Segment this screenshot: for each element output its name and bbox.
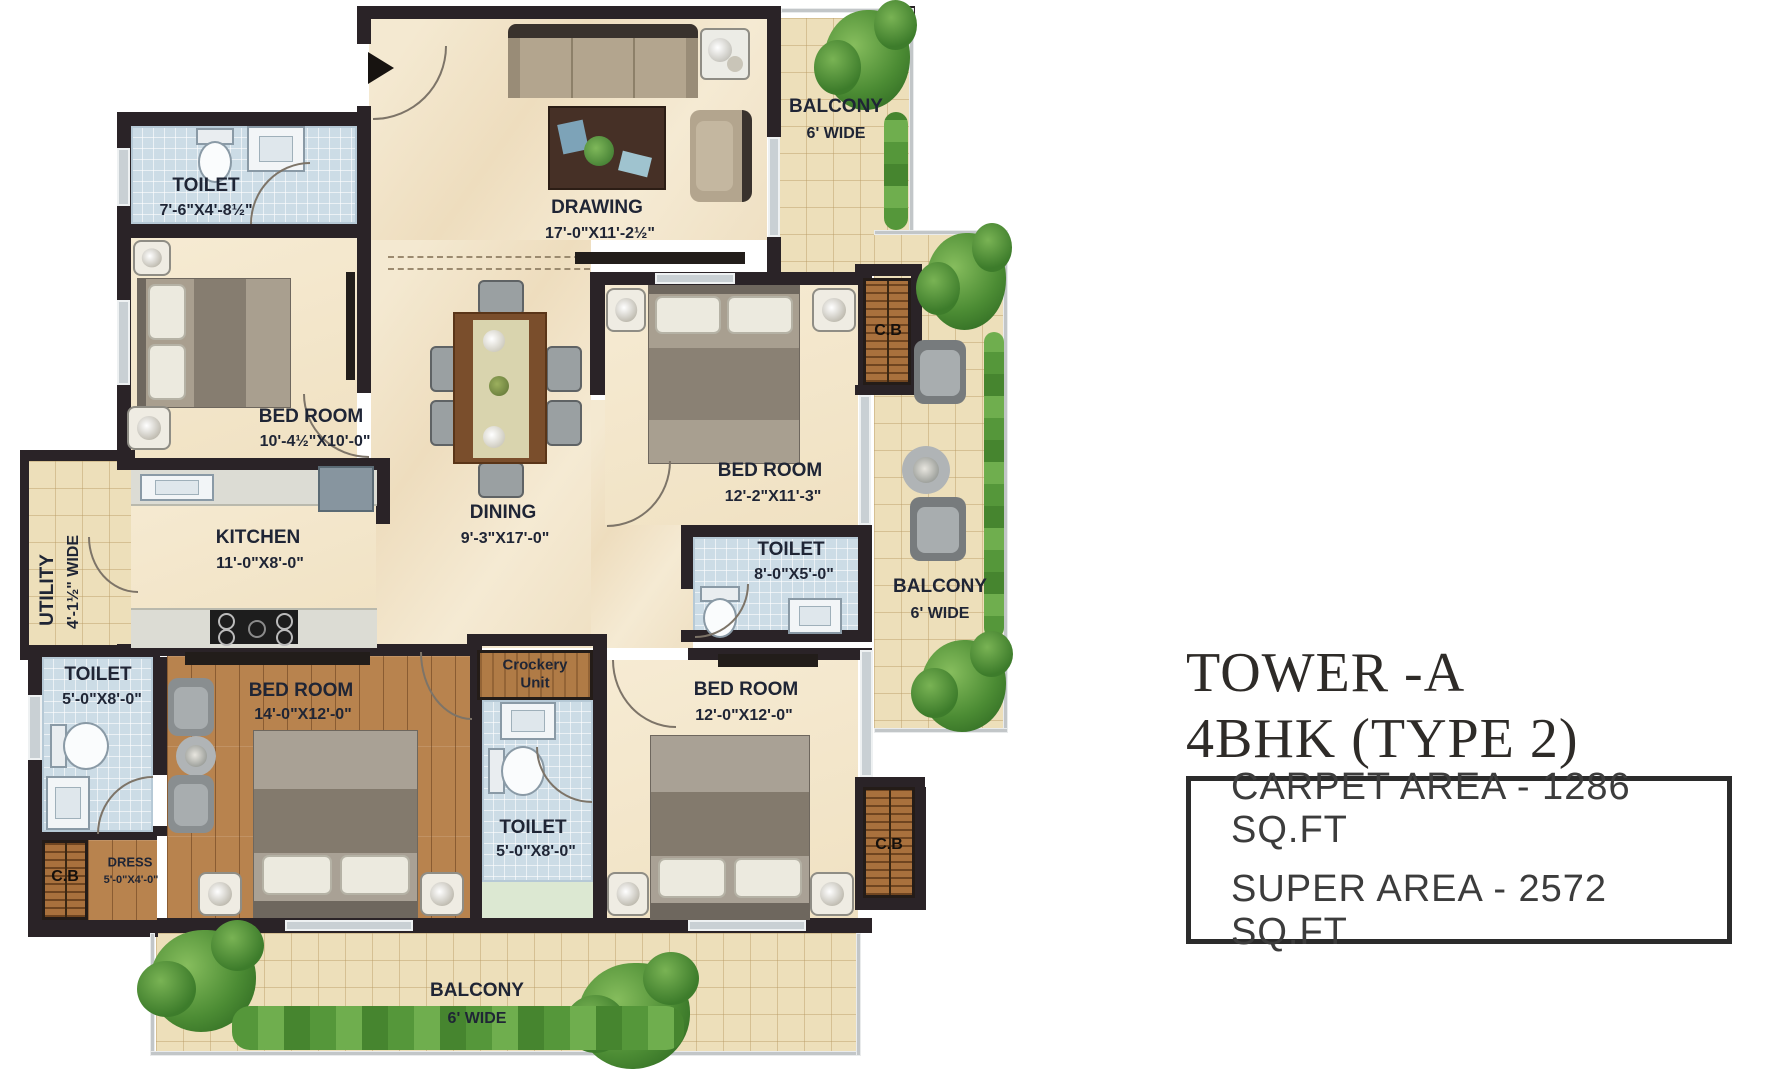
dining-chair [546, 400, 582, 446]
wall-segment [915, 787, 926, 900]
entry-arrow-icon [368, 52, 394, 84]
wall-segment [467, 634, 607, 646]
room-label: BED ROOM [259, 406, 364, 428]
balcony-railing [874, 728, 1008, 733]
room-label: BALCONY [789, 96, 883, 118]
wall-segment [855, 777, 925, 787]
plan-title: TOWER -A 4BHK (TYPE 2) [1186, 640, 1579, 772]
room-label: BED ROOM [249, 680, 354, 702]
wall-segment [117, 224, 371, 238]
room-dims: 17'-0"X11'-2½" [545, 225, 655, 243]
armchair [168, 678, 214, 736]
wall-segment [357, 106, 371, 240]
carpet-area-text: CARPET AREA - 1286 SQ.FT [1231, 766, 1727, 852]
room-label: Crockery [502, 657, 567, 674]
sliding-door [285, 920, 413, 931]
room-dims: 12'-2"X11'-3" [725, 488, 822, 506]
room-dims: 6' WIDE [911, 605, 970, 623]
pillow [148, 284, 186, 340]
dining-chair [478, 462, 524, 498]
nightstand [420, 872, 464, 916]
window [860, 650, 873, 777]
window [768, 137, 780, 237]
balcony-railing [856, 933, 861, 1056]
armchair [168, 775, 214, 833]
side-table [700, 28, 750, 80]
room-label: TOILET [64, 664, 131, 686]
room-dims: 6' WIDE [807, 125, 866, 143]
room-label: BED ROOM [694, 679, 799, 701]
nightstand [127, 406, 171, 450]
wall-segment [357, 240, 371, 393]
room-dims: 12'-0"X12'-0" [695, 707, 793, 725]
bathroom-sink [500, 702, 556, 740]
round-rug [176, 736, 216, 776]
tv-console [185, 652, 370, 665]
wall-segment [593, 646, 607, 920]
refrigerator [318, 466, 374, 512]
pillow [655, 296, 721, 334]
armchair [690, 110, 752, 202]
pillow [734, 858, 802, 898]
room-dims: 5'-0"X8'-0" [496, 843, 576, 861]
coffee-table [548, 106, 666, 190]
room-label: UTILITY [37, 554, 59, 626]
room-dims: 5'-0"X4'-0" [104, 874, 159, 886]
wall-segment [855, 385, 922, 395]
nightstand [607, 872, 649, 916]
nightstand [810, 872, 854, 916]
sofa [508, 24, 698, 98]
room-dims: 6' WIDE [448, 1010, 507, 1028]
tv-console [575, 252, 745, 264]
wall-segment [767, 237, 781, 272]
room-label: Unit [520, 675, 549, 692]
wall-segment [590, 272, 605, 395]
open-plan-dashed-line [388, 268, 590, 270]
super-area-text: SUPER AREA - 2572 SQ.FT [1231, 868, 1727, 954]
wall-segment [855, 898, 926, 910]
vine-strip [884, 112, 908, 230]
wall-segment [357, 6, 781, 19]
balcony-table [902, 446, 950, 494]
pillow [340, 855, 410, 895]
window [117, 148, 130, 206]
pillow [262, 855, 332, 895]
stove [210, 610, 298, 644]
nightstand [812, 288, 856, 332]
nightstand [606, 288, 646, 332]
wall-segment [681, 525, 872, 537]
room-dims: 11'-0"X8'-0" [216, 555, 304, 573]
plan-title-line2: 4BHK (TYPE 2) [1186, 706, 1579, 772]
cupboard-label: C.B [875, 836, 903, 854]
toilet-bowl [63, 722, 109, 770]
window [28, 695, 42, 760]
balcony-railing [150, 1051, 861, 1056]
floor-plan-page: { "title": { "line1": "TOWER -A", "line2… [0, 0, 1779, 1080]
cupboard-label: C.B [874, 322, 902, 340]
room-label: TOILET [499, 817, 566, 839]
room-label: TOILET [172, 175, 239, 197]
room-label: KITCHEN [216, 527, 300, 549]
bathroom-sink [46, 776, 90, 830]
room-dims: 7'-6"X4'-8½" [159, 202, 252, 220]
wall-segment [20, 450, 29, 660]
wall-segment [376, 458, 390, 524]
pillow [727, 296, 793, 334]
nightstand [198, 872, 242, 916]
tv-console [718, 654, 818, 667]
room-dims: 10'-4½"X10'-0" [260, 433, 371, 451]
wall-segment [767, 19, 781, 137]
room-dims: 14'-0"X12'-0" [254, 706, 352, 724]
dining-table [453, 312, 547, 464]
wall-segment [858, 525, 872, 642]
wall-segment [357, 19, 371, 44]
nightstand [133, 240, 171, 276]
room-label: BALCONY [430, 980, 524, 1002]
area-info-box: CARPET AREA - 1286 SQ.FT SUPER AREA - 25… [1186, 776, 1732, 944]
room-dims: 5'-0"X8'-0" [62, 691, 142, 709]
wall-segment [28, 645, 42, 937]
room-dims: 4'-1½" WIDE [65, 535, 83, 629]
wall-segment [20, 450, 135, 461]
room-label: DINING [470, 502, 537, 524]
dining-chair [478, 280, 524, 316]
window [117, 300, 130, 385]
wall-segment [117, 112, 371, 126]
wall-segment [153, 657, 167, 775]
pillow [658, 858, 726, 898]
wall-segment [28, 920, 158, 937]
wall-segment [855, 787, 863, 900]
bathroom-sink [788, 598, 842, 634]
open-plan-dashed-line [388, 256, 590, 258]
toilet-bottom-mid-mat [482, 882, 593, 918]
room-dims: 8'-0"X5'-0" [754, 566, 834, 584]
room-label: BALCONY [893, 576, 987, 598]
window [859, 395, 871, 525]
room-label: TOILET [757, 539, 824, 561]
balcony-armchair [910, 497, 966, 561]
room-label: BED ROOM [718, 460, 823, 482]
cupboard-label: C.B [51, 868, 79, 886]
room-dims: 9'-3"X17'-0" [461, 530, 550, 548]
tv-panel [346, 272, 355, 380]
pillow [148, 344, 186, 400]
sliding-door [688, 920, 806, 931]
balcony-armchair [914, 340, 966, 404]
kitchen-sink [140, 474, 214, 501]
dining-chair [546, 346, 582, 392]
room-label: DRESS [108, 855, 153, 870]
plan-title-line1: TOWER -A [1186, 640, 1579, 706]
wall-segment [681, 537, 693, 589]
room-label: DRAWING [551, 197, 643, 219]
window [655, 273, 735, 284]
